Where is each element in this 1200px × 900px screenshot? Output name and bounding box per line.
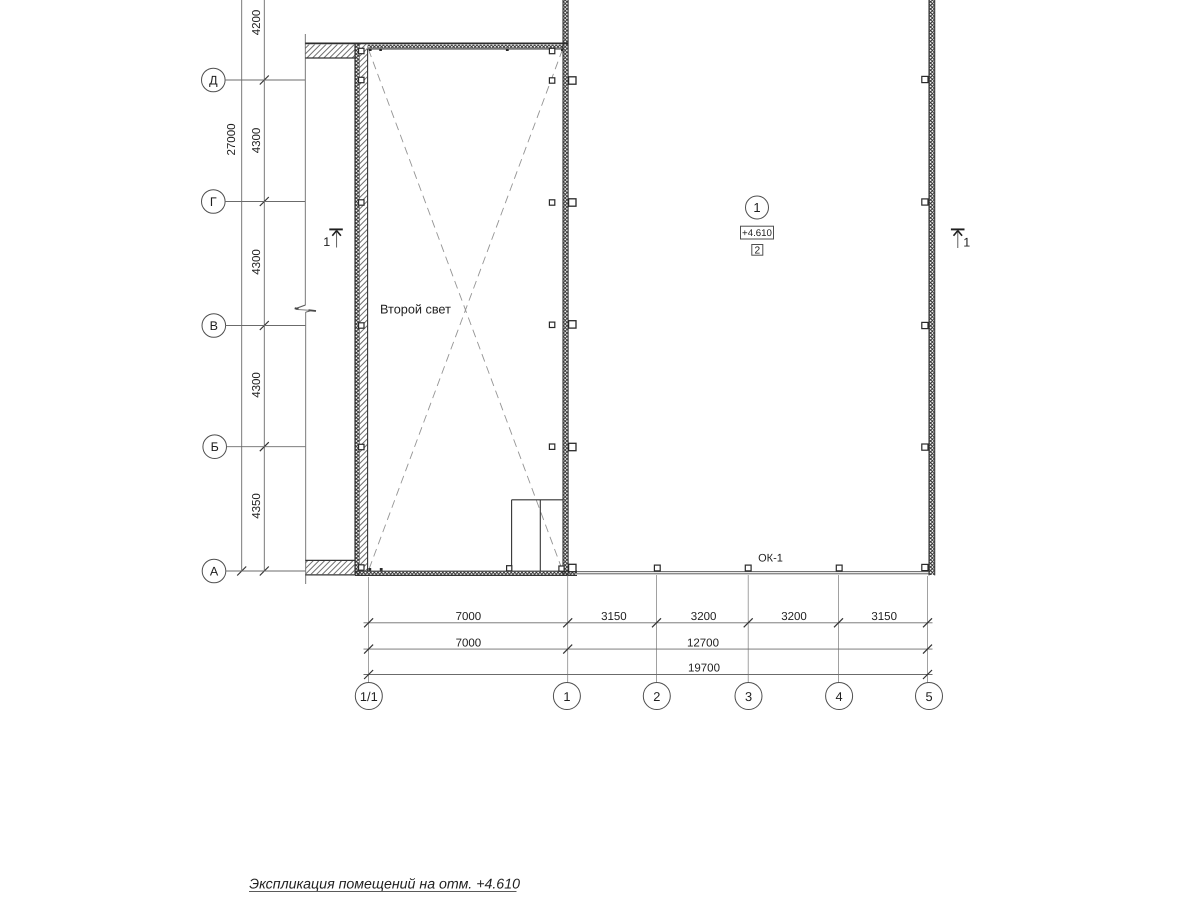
svg-text:1: 1 [963,235,970,249]
svg-text:3150: 3150 [871,611,897,623]
svg-text:12700: 12700 [687,637,719,649]
svg-text:Б: Б [211,440,219,454]
svg-text:3200: 3200 [781,611,807,623]
svg-text:7000: 7000 [456,637,482,649]
svg-text:19700: 19700 [688,663,720,675]
svg-text:В: В [210,319,218,333]
svg-text:Второй свет: Второй свет [380,303,451,317]
svg-text:Д: Д [209,74,218,88]
svg-text:3150: 3150 [601,611,627,623]
svg-text:ОК-1: ОК-1 [758,553,783,565]
svg-text:27000: 27000 [226,124,238,156]
svg-text:4200: 4200 [251,10,263,36]
svg-text:3: 3 [745,689,752,704]
svg-text:4300: 4300 [251,128,263,154]
svg-text:3200: 3200 [691,611,717,623]
svg-text:4: 4 [836,689,843,704]
svg-text:1/1: 1/1 [360,689,378,704]
svg-text:4300: 4300 [251,249,263,275]
svg-text:2: 2 [653,689,660,704]
svg-text:+4.610: +4.610 [742,228,773,239]
svg-text:2: 2 [754,245,760,256]
svg-text:А: А [210,565,219,579]
svg-text:4350: 4350 [251,493,263,519]
svg-text:7000: 7000 [456,611,482,623]
svg-text:Г: Г [210,195,217,209]
svg-text:5: 5 [925,689,932,704]
svg-text:Экспликация помещений на отм.: Экспликация помещений на отм. +4.610 [249,877,520,893]
svg-text:1: 1 [753,200,760,215]
svg-text:1: 1 [323,235,330,249]
svg-text:1: 1 [563,689,570,704]
svg-text:4300: 4300 [251,372,263,398]
